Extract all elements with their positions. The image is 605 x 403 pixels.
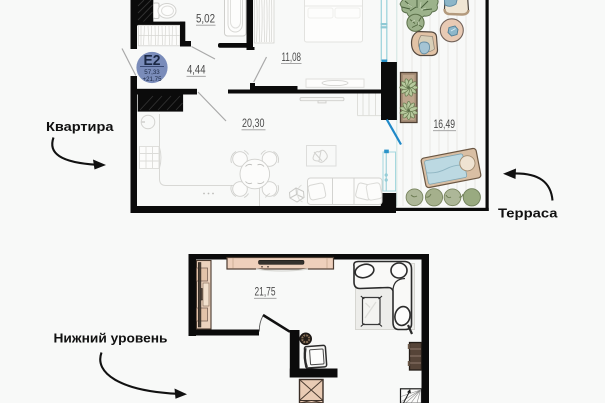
svg-text:+21,75: +21,75 xyxy=(143,76,162,83)
svg-text:16,49: 16,49 xyxy=(434,117,456,131)
svg-text:Нижний уровень: Нижний уровень xyxy=(54,332,168,346)
svg-text:Квартира: Квартира xyxy=(46,120,115,134)
svg-text:21,75: 21,75 xyxy=(255,285,276,299)
svg-text:57,33: 57,33 xyxy=(144,69,160,76)
svg-text:5,02: 5,02 xyxy=(196,12,215,26)
svg-text:20,30: 20,30 xyxy=(242,116,265,130)
svg-text:11,08: 11,08 xyxy=(282,50,302,64)
svg-text:Терраса: Терраса xyxy=(498,207,559,221)
svg-text:4,44: 4,44 xyxy=(187,63,206,77)
